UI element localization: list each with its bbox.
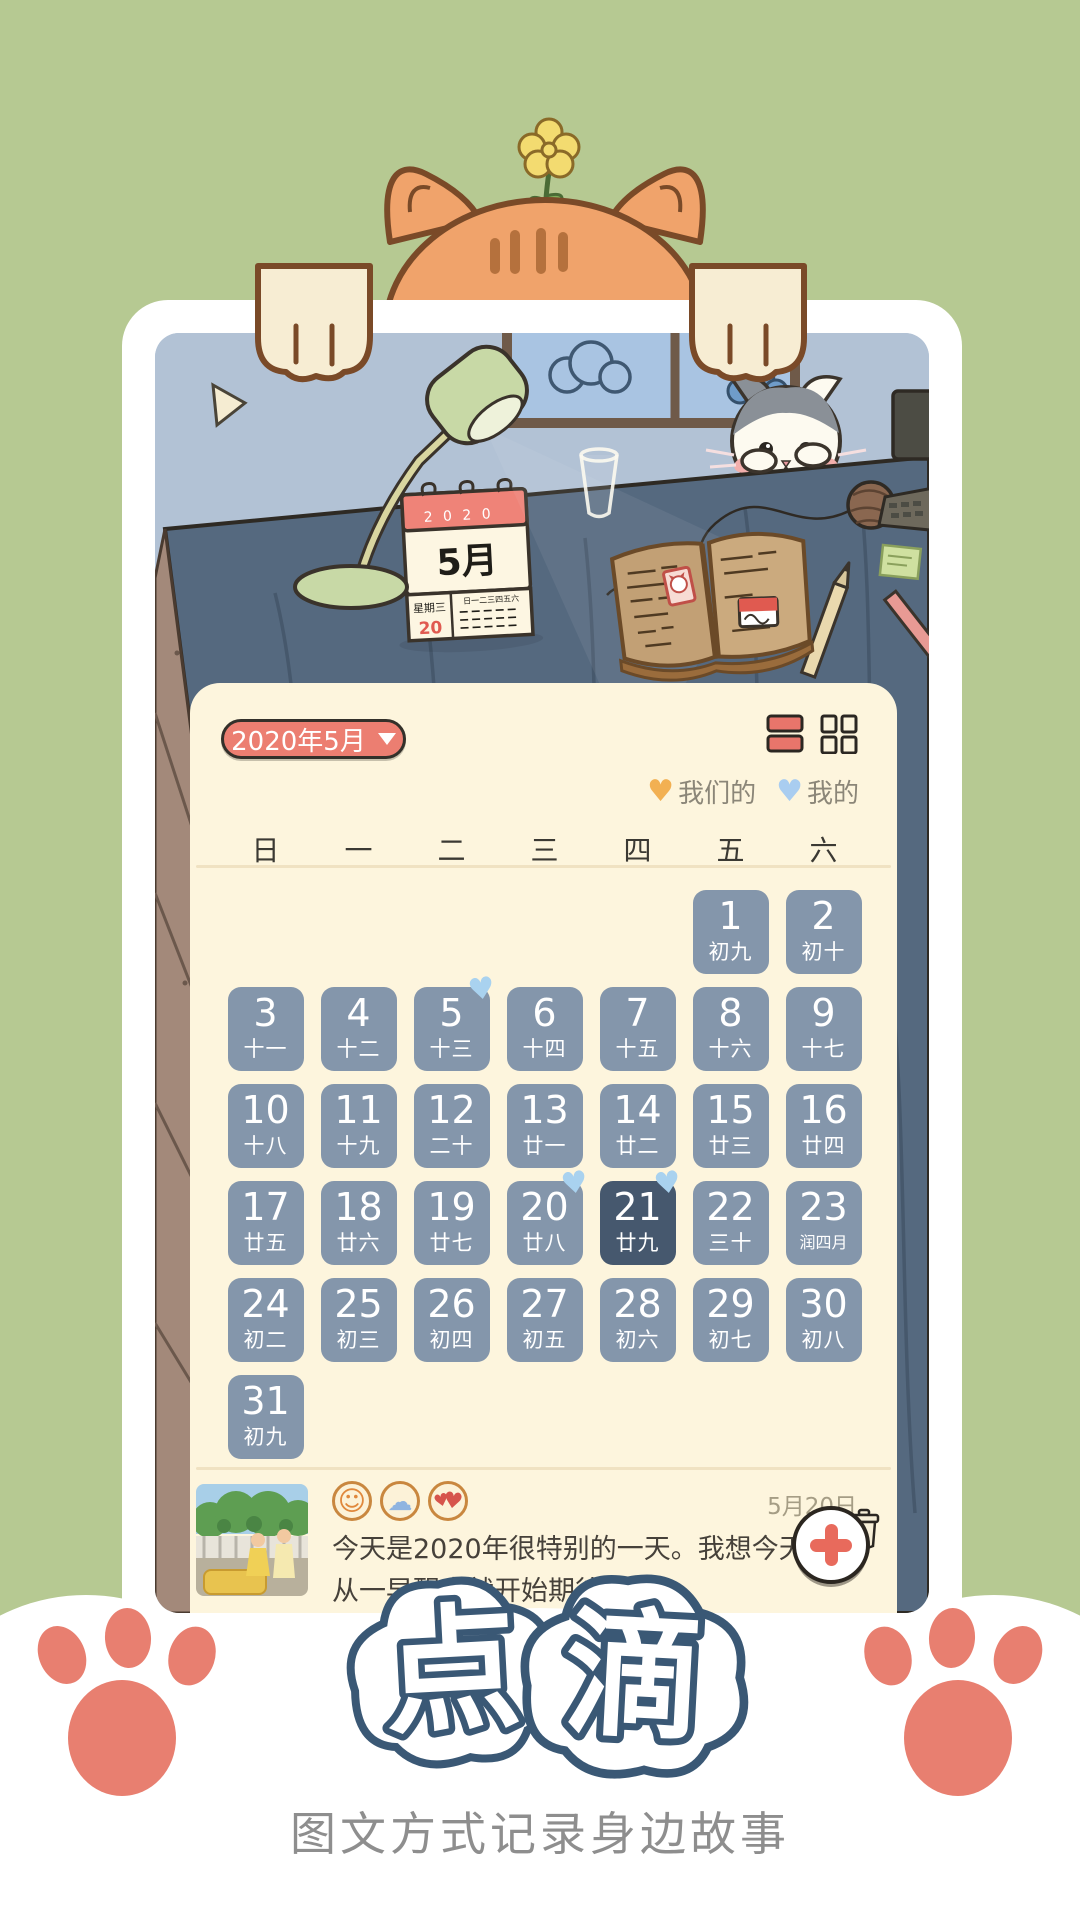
calendar-day-24[interactable]: 24初二 [228,1278,304,1362]
desk-calendar-month: 5月 [436,540,499,584]
day-number: 10 [228,1087,304,1133]
calendar-grid: 1初九2初十3十一4十二5十三♥6十四7十五8十六9十七10十八11十九12二十… [219,890,870,1472]
weekday-label: 五 [684,829,777,869]
lunar-date: 廿八 [507,1230,583,1256]
day-number: 29 [693,1281,769,1327]
day-number: 28 [600,1281,676,1327]
day-number: 18 [321,1184,397,1230]
calendar-day-31[interactable]: 31初九 [228,1375,304,1459]
logo-char-dian: 点 [380,1590,524,1755]
lunar-date: 初九 [228,1424,304,1450]
cloud-icon: ☁ [380,1481,420,1521]
calendar-day-22[interactable]: 22三十 [693,1181,769,1265]
cat-sticker [663,567,696,606]
lunar-date: 初五 [507,1327,583,1353]
grid-view-icon[interactable] [819,714,859,754]
day-number: 31 [228,1378,304,1424]
calendar-day-20[interactable]: 20廿八♥ [507,1181,583,1265]
lunar-date: 初九 [693,939,769,965]
weekday-label: 日 [219,829,312,869]
day-number: 14 [600,1087,676,1133]
divider [196,865,891,868]
calendar-day-21[interactable]: 21廿九♥ [600,1181,676,1265]
legend: ♥我们的♥我的 [647,773,859,810]
lunar-date: 三十 [693,1230,769,1256]
lunar-date: 初三 [321,1327,397,1353]
calendar-day-5[interactable]: 5十三♥ [414,987,490,1071]
cat-front-paws [236,258,844,390]
entry-mood-stickers: ☺☁♥♥ [332,1481,468,1521]
calendar-day-10[interactable]: 10十八 [228,1084,304,1168]
legend-item: ♥我们的 [647,773,756,810]
day-number: 25 [321,1281,397,1327]
lunar-date: 初四 [414,1327,490,1353]
lunar-date: 十五 [600,1036,676,1062]
lunar-date: 初六 [600,1327,676,1353]
calendar-day-29[interactable]: 29初七 [693,1278,769,1362]
main-card: 2 0 2 0 5月 星期三 20 日一二三四五六 [122,300,962,1655]
day-number: 8 [693,990,769,1036]
desk-calendar-day: 20 [418,618,443,639]
lunar-date: 廿三 [693,1133,769,1159]
chevron-down-icon [378,733,396,745]
calendar-day-23[interactable]: 23润四月 [786,1181,862,1265]
empty-day-slot [498,890,574,974]
day-number: 11 [321,1087,397,1133]
app-screen: 2 0 2 0 5月 星期三 20 日一二三四五六 [0,0,1080,1920]
calendar-day-4[interactable]: 4十二 [321,987,397,1071]
double-heart-icon: ♥♥ [428,1481,468,1521]
calendar-day-1[interactable]: 1初九 [693,890,769,974]
diary-heart-marker: ♥ [465,970,497,1008]
day-number: 4 [321,990,397,1036]
desk-calendar-weekday: 星期三 [413,601,447,616]
day-number: 7 [600,990,676,1036]
day-number: 9 [786,990,862,1036]
day-number: 12 [414,1087,490,1133]
calendar-day-8[interactable]: 8十六 [693,987,769,1071]
calendar-day-25[interactable]: 25初三 [321,1278,397,1362]
calendar-day-18[interactable]: 18廿六 [321,1181,397,1265]
diary-heart-marker: ♥ [651,1164,683,1202]
day-number: 2 [786,893,862,939]
day-number: 6 [507,990,583,1036]
lunar-date: 十八 [228,1133,304,1159]
day-number: 23 [786,1184,862,1230]
lunar-date: 廿九 [600,1230,676,1256]
lunar-date: 十九 [321,1133,397,1159]
calendar-day-11[interactable]: 11十九 [321,1084,397,1168]
lunar-date: 廿七 [414,1230,490,1256]
empty-day-slot [312,890,388,974]
weekday-header-row: 日一二三四五六 [219,829,870,869]
lunar-date: 二十 [414,1133,490,1159]
day-number: 16 [786,1087,862,1133]
lunar-date: 廿一 [507,1133,583,1159]
calendar-day-14[interactable]: 14廿二 [600,1084,676,1168]
day-number: 1 [693,893,769,939]
calendar-day-3[interactable]: 3十一 [228,987,304,1071]
smiley-face-icon: ☺ [332,1481,372,1521]
heart-icon: ♥ [647,777,674,807]
day-number: 27 [507,1281,583,1327]
day-number: 22 [693,1184,769,1230]
lunar-date: 廿四 [786,1133,862,1159]
calendar-day-16[interactable]: 16廿四 [786,1084,862,1168]
calendar-day-9[interactable]: 9十七 [786,987,862,1071]
calendar-day-19[interactable]: 19廿七 [414,1181,490,1265]
day-number: 3 [228,990,304,1036]
weekday-label: 三 [498,829,591,869]
calendar-day-27[interactable]: 27初五 [507,1278,583,1362]
diary-heart-marker: ♥ [558,1164,590,1202]
lunar-date: 十四 [507,1036,583,1062]
app-logo: 点 滴 [346,1573,750,1781]
empty-day-slot [219,890,295,974]
legend-label: 我们的 [678,773,756,810]
lunar-date: 十三 [414,1036,490,1062]
empty-day-slot [591,890,667,974]
app-tagline: 图文方式记录身边故事 [0,1798,1080,1864]
glass-cup [581,449,617,517]
legend-label: 我的 [807,773,859,810]
month-selector-button[interactable]: 2020年5月 [221,719,406,759]
calendar-day-12[interactable]: 12二十 [414,1084,490,1168]
weekday-label: 六 [777,829,870,869]
lunar-date: 初十 [786,939,862,965]
calendar-day-17[interactable]: 17廿五 [228,1181,304,1265]
month-selector-label: 2020年5月 [231,721,366,758]
weekday-label: 二 [405,829,498,869]
calendar-day-2[interactable]: 2初十 [786,890,862,974]
calendar-day-13[interactable]: 13廿一 [507,1084,583,1168]
calendar-day-7[interactable]: 7十五 [600,987,676,1071]
empty-day-slot [405,890,481,974]
day-number: 17 [228,1184,304,1230]
legend-item: ♥我的 [776,773,859,810]
lunar-date: 廿五 [228,1230,304,1256]
lunar-date: 十七 [786,1036,862,1062]
weekday-label: 一 [312,829,405,869]
calendar-day-6[interactable]: 6十四 [507,987,583,1071]
lunar-date: 廿二 [600,1133,676,1159]
bottom-decoration: 点 滴 [0,1560,1080,1920]
lunar-date: 十六 [693,1036,769,1062]
lunar-date: 十一 [228,1036,304,1062]
day-number: 15 [693,1087,769,1133]
weekday-label: 四 [591,829,684,869]
calendar-panel: 2020年5月 ♥我们的♥我的 日一二三四五六 1初九2初十3十一4十二5十三♥… [190,683,897,1613]
stamp-sticker [739,597,778,626]
day-number: 13 [507,1087,583,1133]
calendar-day-15[interactable]: 15廿三 [693,1084,769,1168]
lunar-date: 廿六 [321,1230,397,1256]
heart-icon: ♥ [776,777,803,807]
list-view-icon[interactable] [766,714,806,754]
sticky-note [880,545,921,579]
day-number: 24 [228,1281,304,1327]
lunar-date: 初七 [693,1327,769,1353]
lunar-date: 初二 [228,1327,304,1353]
calendar-day-28[interactable]: 28初六 [600,1278,676,1362]
lunar-date: 润四月 [786,1230,862,1256]
day-number: 26 [414,1281,490,1327]
lunar-date: 十二 [321,1036,397,1062]
divider [196,1467,891,1470]
logo-char-di: 滴 [561,1592,707,1760]
day-number: 19 [414,1184,490,1230]
calendar-day-30[interactable]: 30初八 [786,1278,862,1362]
lunar-date: 初八 [786,1327,862,1353]
calendar-day-26[interactable]: 26初四 [414,1278,490,1362]
day-number: 30 [786,1281,862,1327]
